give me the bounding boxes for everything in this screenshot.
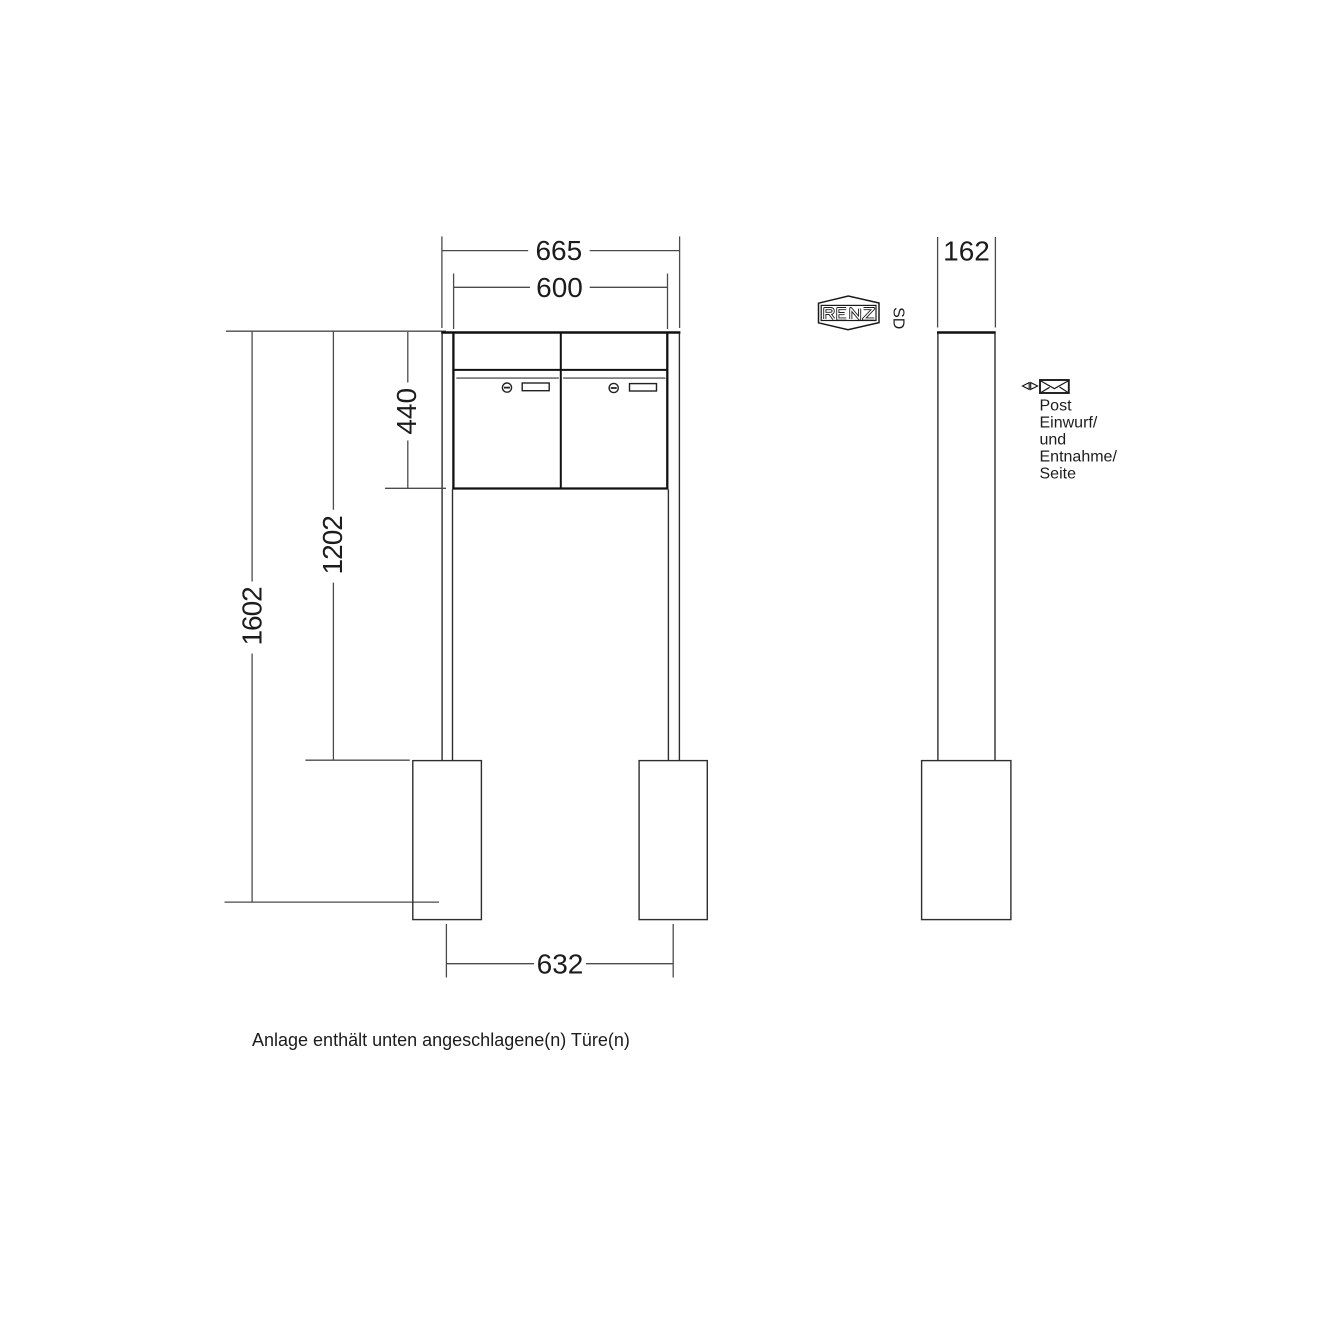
svg-text:Entnahme/: Entnahme/ <box>1040 449 1118 466</box>
svg-text:162: 162 <box>943 235 990 266</box>
svg-text:1602: 1602 <box>236 587 267 646</box>
svg-text:1202: 1202 <box>317 516 348 575</box>
svg-text:Post: Post <box>1040 398 1073 415</box>
svg-text:Anlage enthält unten angeschla: Anlage enthält unten angeschlagene(n) Tü… <box>252 1030 630 1050</box>
svg-text:632: 632 <box>537 948 584 979</box>
svg-text:Einwurf/: Einwurf/ <box>1040 415 1098 432</box>
svg-text:und: und <box>1040 432 1067 449</box>
svg-text:665: 665 <box>535 235 582 266</box>
svg-text:SD: SD <box>889 307 906 329</box>
svg-text:440: 440 <box>391 388 422 435</box>
svg-text:600: 600 <box>536 272 583 303</box>
svg-text:Seite: Seite <box>1040 466 1077 483</box>
